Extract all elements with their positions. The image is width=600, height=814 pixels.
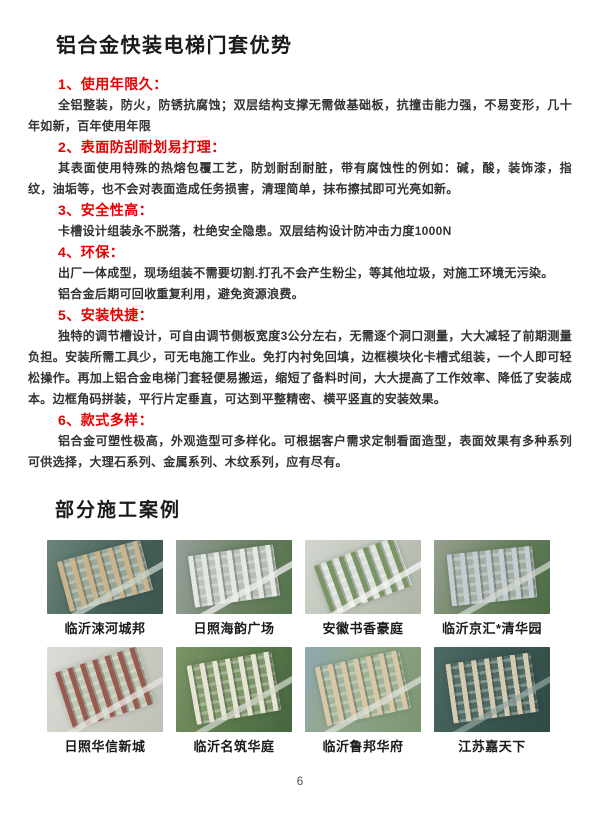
case-photo	[176, 647, 292, 732]
case-grid: 临沂涑河城邦 日照海韵广场 安徽书香豪庭	[47, 540, 600, 755]
case-caption: 江苏嘉天下	[434, 739, 550, 755]
case-caption: 临沂京汇*清华园	[434, 621, 550, 637]
page-title: 铝合金快装电梯门套优势	[56, 34, 572, 58]
page-number: 6	[0, 774, 600, 788]
case-item: 日照海韵广场	[176, 540, 292, 637]
case-photo	[434, 540, 550, 614]
case-item: 江苏嘉天下	[434, 647, 550, 755]
case-item: 临沂京汇*清华园	[434, 540, 550, 637]
document-page: 铝合金快装电梯门套优势 1、使用年限久： 全铝整装，防火，防锈抗腐蚀；双层结构支…	[0, 0, 600, 814]
advantage-paragraph: 卡槽设计组装永不脱落，杜绝安全隐患。双层结构设计防冲击力度1000N	[28, 221, 572, 242]
advantage-heading-6: 6、款式多样：	[58, 410, 572, 431]
case-photo	[176, 540, 292, 614]
case-caption: 临沂鲁邦华府	[305, 739, 421, 755]
advantage-heading-3: 3、安全性高：	[58, 200, 572, 221]
case-photo	[434, 647, 550, 732]
advantage-heading-2: 2、表面防刮耐划易打理：	[58, 137, 572, 158]
advantage-paragraph: 其表面使用特殊的热熔包覆工艺，防划耐刮耐脏，带有腐蚀性的例如：碱，酸，装饰漆，指…	[28, 158, 572, 200]
case-caption: 日照华信新城	[47, 739, 163, 755]
case-caption: 临沂名筑华庭	[176, 739, 292, 755]
case-photo	[47, 647, 163, 732]
cases-title: 部分施工案例	[55, 499, 600, 523]
advantage-paragraph: 铝合金可塑性极高，外观造型可多样化。可根据客户需求定制看面造型，表面效果有多种系…	[28, 431, 572, 473]
advantage-paragraph: 铝合金后期可回收重复利用，避免资源浪费。	[28, 284, 572, 305]
advantage-heading-5: 5、安装快捷：	[58, 305, 572, 326]
case-photo	[305, 647, 421, 732]
advantages-section: 铝合金快装电梯门套优势 1、使用年限久： 全铝整装，防火，防锈抗腐蚀；双层结构支…	[0, 0, 600, 473]
case-item: 日照华信新城	[47, 647, 163, 755]
case-caption: 日照海韵广场	[176, 621, 292, 637]
cases-section: 部分施工案例 临沂涑河城邦 日照海韵广场	[0, 499, 600, 755]
case-photo	[47, 540, 163, 614]
advantage-heading-1: 1、使用年限久：	[58, 74, 572, 95]
case-item: 临沂鲁邦华府	[305, 647, 421, 755]
case-caption: 临沂涑河城邦	[47, 621, 163, 637]
advantage-heading-4: 4、环保：	[58, 242, 572, 263]
advantage-paragraph: 出厂一体成型，现场组装不需要切割.打孔不会产生粉尘，等其他垃圾，对施工环境无污染…	[28, 263, 572, 284]
advantage-paragraph: 独特的调节槽设计，可自由调节侧板宽度3公分左右，无需逐个洞口测量，大大减轻了前期…	[28, 326, 572, 410]
case-item: 临沂涑河城邦	[47, 540, 163, 637]
case-item: 临沂名筑华庭	[176, 647, 292, 755]
advantage-paragraph: 全铝整装，防火，防锈抗腐蚀；双层结构支撑无需做基础板，抗撞击能力强，不易变形，几…	[28, 95, 572, 137]
case-item: 安徽书香豪庭	[305, 540, 421, 637]
case-photo	[305, 540, 421, 614]
case-caption: 安徽书香豪庭	[305, 621, 421, 637]
